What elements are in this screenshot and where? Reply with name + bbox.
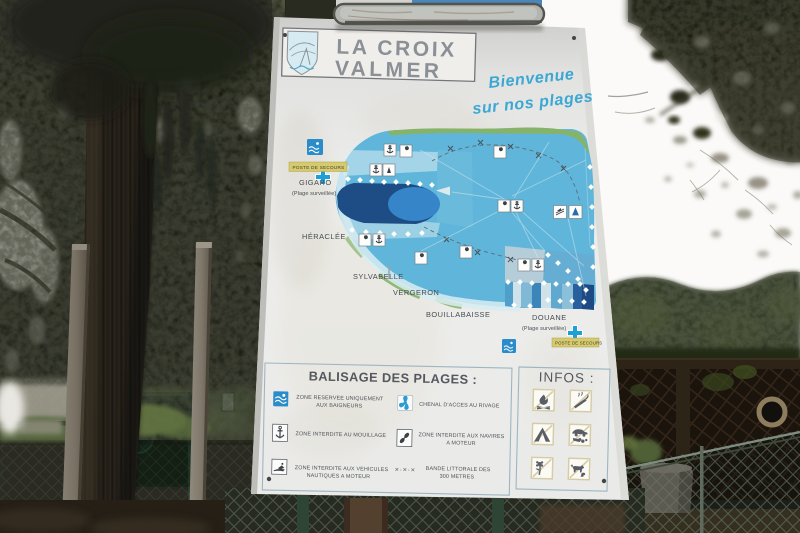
svg-text:(Plage surveillée): (Plage surveillée) [292,191,336,197]
svg-text:GIGARO: GIGARO [299,178,332,187]
svg-text:DOUANE: DOUANE [532,313,567,322]
svg-text:×·×·×: ×·×·× [395,467,416,474]
svg-text:INFOS :: INFOS : [539,369,595,385]
svg-text:VERGERON: VERGERON [393,288,439,297]
svg-text:A MOTEUR: A MOTEUR [446,440,475,447]
svg-text:(Plage surveillée): (Plage surveillée) [522,326,566,332]
svg-text:300 METRES: 300 METRES [440,474,475,481]
svg-text:POSTE DE SECOURS: POSTE DE SECOURS [293,165,345,170]
svg-text:SYLVABELLE: SYLVABELLE [353,272,404,281]
svg-text:POSTE DE SECOURS: POSTE DE SECOURS [555,341,602,346]
svg-text:AUX BAIGNEURS: AUX BAIGNEURS [316,403,363,410]
svg-text:BOUILLABAISSE: BOUILLABAISSE [426,310,490,319]
svg-text:VALMER: VALMER [335,57,443,83]
svg-text:HÉRACLÉE: HÉRACLÉE [302,232,346,241]
